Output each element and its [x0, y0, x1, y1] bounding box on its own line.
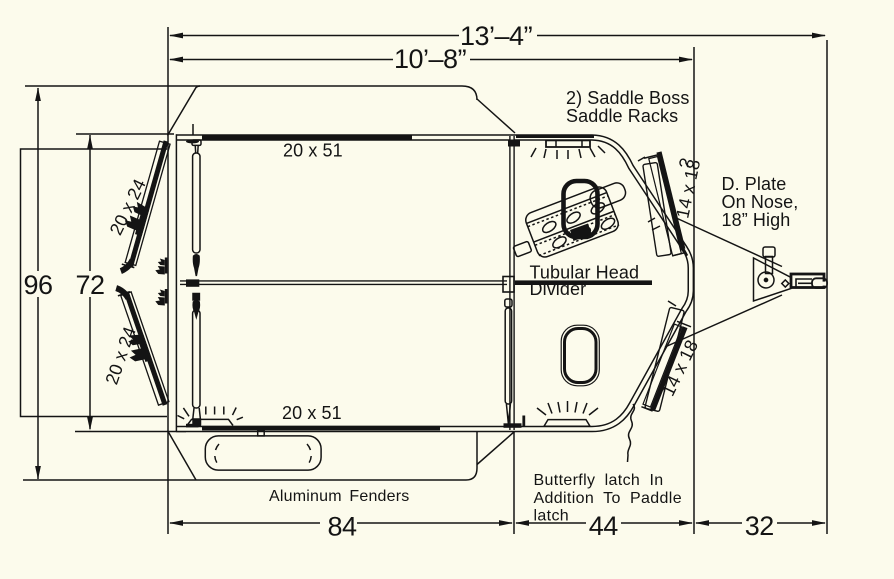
svg-text:10’–8”: 10’–8”	[394, 44, 466, 74]
svg-text:13’–4”: 13’–4”	[460, 21, 532, 51]
svg-text:20 x 51: 20 x 51	[282, 403, 342, 423]
svg-text:84: 84	[328, 512, 358, 542]
svg-text:72: 72	[76, 270, 105, 300]
svg-text:20 x 51: 20 x 51	[283, 141, 343, 161]
svg-text:On Nose,: On Nose,	[722, 192, 799, 212]
svg-text:32: 32	[745, 511, 774, 541]
svg-text:Butterfly latch In: Butterfly latch In	[534, 472, 664, 489]
svg-text:96: 96	[24, 270, 53, 300]
svg-text:Aluminum Fenders: Aluminum Fenders	[269, 488, 409, 505]
svg-text:2) Saddle Boss: 2) Saddle Boss	[566, 88, 689, 108]
svg-text:44: 44	[589, 511, 619, 541]
svg-text:Addition To Paddle: Addition To Paddle	[534, 490, 682, 507]
svg-text:Saddle Racks: Saddle Racks	[566, 106, 678, 126]
svg-text:Divider: Divider	[530, 279, 587, 299]
svg-text:18” High: 18” High	[722, 210, 791, 230]
svg-text:D. Plate: D. Plate	[722, 174, 787, 194]
svg-text:latch: latch	[534, 508, 570, 525]
